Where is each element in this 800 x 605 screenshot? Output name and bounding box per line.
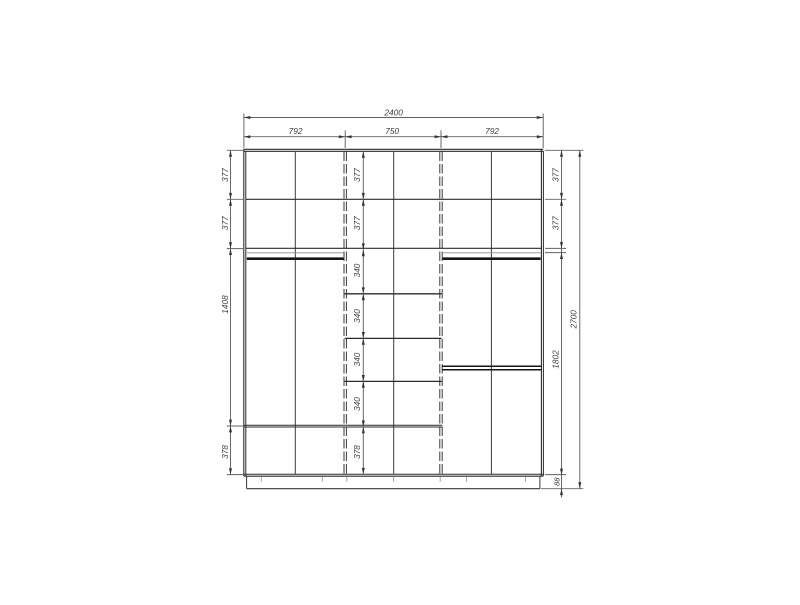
svg-text:377: 377	[220, 168, 230, 182]
svg-text:340: 340	[352, 352, 362, 366]
svg-text:340: 340	[352, 309, 362, 323]
svg-text:377: 377	[220, 216, 230, 230]
svg-text:377: 377	[551, 216, 561, 230]
svg-text:1408: 1408	[220, 295, 230, 314]
svg-text:750: 750	[385, 126, 399, 136]
svg-text:792: 792	[485, 126, 499, 136]
svg-text:378: 378	[220, 445, 230, 459]
svg-text:377: 377	[551, 168, 561, 182]
svg-text:1802: 1802	[550, 350, 560, 369]
svg-text:377: 377	[352, 216, 362, 230]
svg-text:2700: 2700	[569, 310, 579, 330]
svg-text:2400: 2400	[383, 107, 403, 117]
svg-text:340: 340	[352, 397, 362, 411]
svg-text:88: 88	[553, 477, 562, 486]
svg-text:377: 377	[352, 168, 362, 182]
svg-text:340: 340	[352, 263, 362, 277]
svg-text:792: 792	[289, 126, 303, 136]
svg-text:378: 378	[352, 445, 362, 459]
